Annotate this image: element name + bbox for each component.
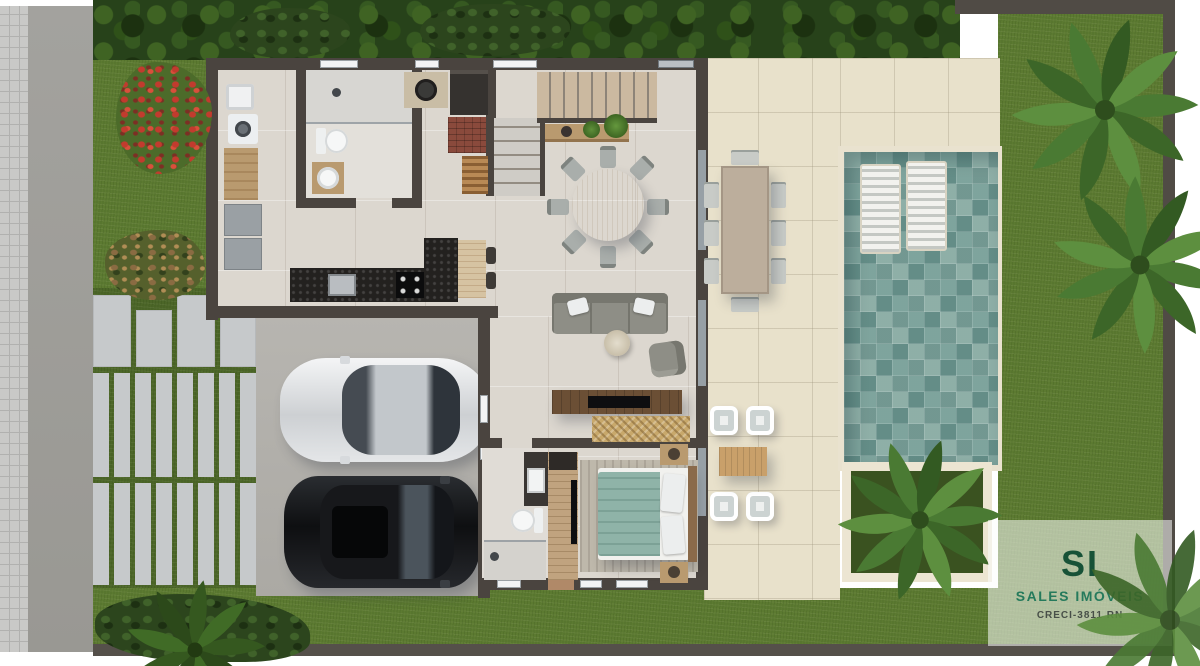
toilet-bowl — [325, 129, 348, 153]
sliding-glass-door — [698, 300, 706, 386]
car-cabin — [342, 365, 460, 455]
headboard — [688, 466, 697, 562]
window — [320, 60, 358, 68]
round-sink — [317, 167, 339, 189]
lounge-chair — [746, 406, 774, 435]
breakfast-bar — [458, 240, 486, 298]
pool-lounger — [906, 161, 947, 251]
patio-chair — [771, 182, 786, 208]
toilet-bowl — [511, 509, 535, 532]
potted-plant — [604, 114, 628, 138]
dining-chair — [600, 146, 616, 168]
sofa-seam — [590, 303, 592, 333]
window — [415, 60, 439, 68]
tv — [588, 396, 650, 408]
staircase-upper-flight — [537, 72, 657, 120]
partition-bath1-bottom — [296, 198, 356, 208]
shower-area — [306, 70, 412, 124]
patio-chair — [771, 258, 786, 284]
armchair — [648, 340, 687, 379]
pool-deck-top — [840, 58, 1000, 152]
sofa-seam — [628, 303, 630, 333]
nightstand-lamp — [668, 566, 680, 578]
living-rug — [592, 416, 690, 442]
window — [616, 580, 648, 588]
lounge-chair — [746, 492, 774, 521]
patio-chair — [704, 220, 719, 246]
bed-pillow — [660, 473, 686, 513]
lounge-chair — [710, 406, 738, 435]
palm-tree — [1045, 170, 1200, 360]
kitchen-sink — [328, 274, 356, 296]
patio-chair — [731, 150, 759, 165]
decor-bowl — [561, 126, 572, 137]
brick-grill — [448, 117, 486, 153]
nightstand-lamp — [668, 448, 680, 460]
patio-chair — [731, 297, 759, 312]
sliding-glass-door — [698, 440, 706, 516]
driveway-slab — [93, 295, 131, 367]
lounge-coffee-table — [719, 447, 767, 476]
cooktop — [396, 272, 424, 298]
car-mirror — [340, 356, 350, 364]
sidewalk-pavers — [0, 6, 28, 652]
dining-chair — [547, 199, 569, 215]
garden-shrub — [105, 230, 205, 300]
kitchen-peninsula — [424, 238, 458, 302]
laundry-sink — [226, 84, 254, 110]
palm-tree — [120, 575, 270, 666]
window — [493, 60, 537, 68]
dining-chair — [600, 246, 616, 268]
toilet — [534, 508, 543, 533]
partition-bedroom-top — [532, 438, 580, 448]
window — [480, 395, 488, 423]
car-black-suv — [284, 476, 480, 588]
floor-plan-render: SI SALES IMÓVEIS CRECI-3811 RN — [0, 0, 1200, 666]
laundry-cabinet — [224, 204, 262, 236]
palm-tree — [832, 432, 1008, 608]
bar-stool — [486, 272, 496, 289]
shower-head — [490, 552, 499, 561]
bbq-grill — [415, 79, 437, 101]
street-strip — [28, 6, 93, 652]
partition-laundry — [296, 68, 306, 208]
patio-chair — [704, 258, 719, 284]
washing-machine-drum — [235, 121, 251, 137]
bed-pillow — [660, 515, 685, 555]
staircase-lower-flight — [494, 118, 540, 196]
laundry-counter — [224, 148, 258, 200]
car-sunroof — [332, 506, 388, 558]
driveway-slat-row — [93, 483, 271, 585]
patio-chair — [771, 220, 786, 246]
firewood-rack — [462, 156, 488, 194]
round-dining-table — [572, 169, 644, 241]
window — [497, 580, 521, 588]
divider-shelf — [549, 452, 577, 470]
palm-tree — [1070, 520, 1200, 666]
outdoor-dining-table — [721, 166, 769, 294]
bedroom-tv — [571, 480, 577, 544]
window — [580, 580, 602, 588]
dining-chair — [647, 199, 669, 215]
car-mirror — [340, 456, 350, 464]
bbq-station — [450, 70, 488, 115]
entry-glass-door — [658, 60, 694, 68]
house-wall-kitchen-bottom — [206, 306, 498, 318]
potted-plant — [583, 121, 600, 138]
lounge-chair — [710, 492, 738, 521]
patio-chair — [704, 182, 719, 208]
bath2-sink — [527, 468, 545, 493]
bar-stool — [486, 247, 496, 264]
driveway-slat-row — [93, 373, 271, 477]
pool-lounger — [860, 164, 901, 254]
coffee-table — [604, 330, 630, 356]
shower-head — [332, 88, 341, 97]
car-mirror — [440, 580, 450, 588]
driveway-slab — [136, 310, 172, 367]
bed-cover — [598, 472, 660, 556]
car-white-sedan — [280, 358, 488, 462]
partition-bedroom-top — [478, 438, 502, 448]
car-mirror — [440, 476, 450, 484]
laundry-cabinet — [224, 238, 262, 270]
house-wall-top — [210, 58, 708, 70]
